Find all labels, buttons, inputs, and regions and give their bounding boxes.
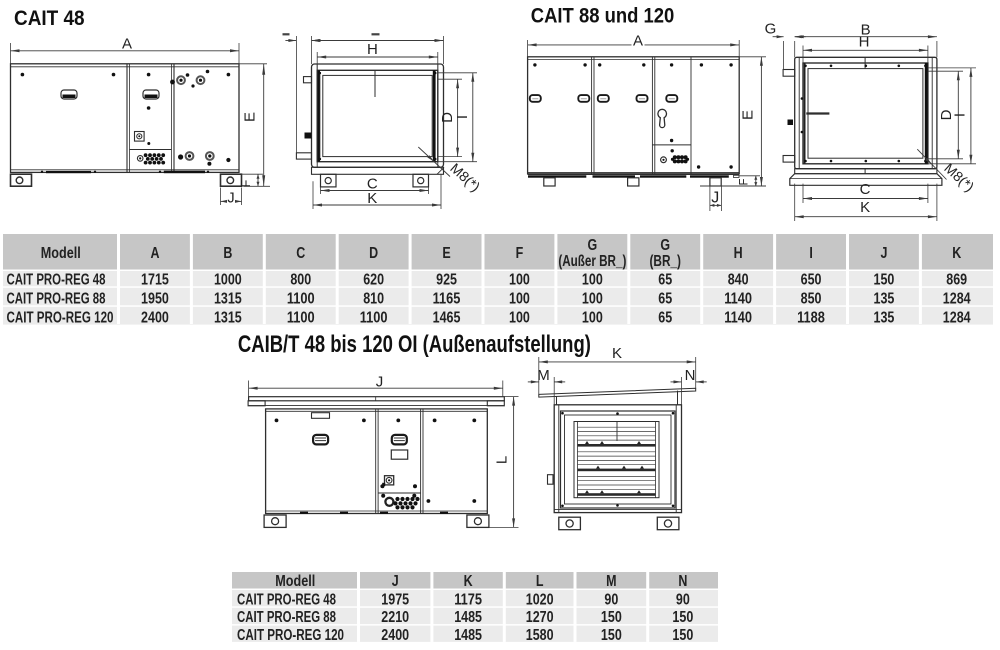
svg-text:L: L [536,573,544,590]
svg-text:1270: 1270 [526,609,554,626]
svg-text:CAIT PRO-REG 48: CAIT PRO-REG 48 [237,591,336,608]
svg-text:840: 840 [728,272,749,289]
svg-text:2210: 2210 [381,609,409,626]
svg-text:1188: 1188 [797,310,825,327]
svg-text:F: F [516,245,524,262]
svg-text:M8(*): M8(*) [941,160,977,195]
svg-text:CAIT PRO-REG 88: CAIT PRO-REG 88 [237,609,336,626]
svg-text:869: 869 [946,272,967,289]
svg-text:M: M [537,367,550,384]
svg-text:1100: 1100 [287,291,315,308]
svg-text:850: 850 [801,291,822,308]
svg-text:CAIT PRO-REG 48: CAIT PRO-REG 48 [7,272,106,289]
svg-text:100: 100 [582,272,603,289]
svg-text:65: 65 [658,291,672,308]
svg-text:1465: 1465 [433,310,461,327]
svg-text:100: 100 [582,310,603,327]
svg-text:2400: 2400 [141,310,169,327]
svg-text:150: 150 [601,627,622,644]
svg-text:H: H [859,33,870,50]
svg-text:CAIT PRO-REG 120: CAIT PRO-REG 120 [7,310,114,327]
svg-text:150: 150 [672,609,693,626]
svg-text:Modell: Modell [41,245,81,262]
svg-text:1284: 1284 [943,310,971,327]
svg-text:A: A [150,245,159,262]
svg-text:65: 65 [658,272,672,289]
svg-text:1100: 1100 [287,310,315,327]
svg-text:90: 90 [676,591,690,608]
svg-text:1020: 1020 [526,591,554,608]
svg-text:150: 150 [601,609,622,626]
svg-text:L: L [494,456,511,464]
svg-text:N: N [678,573,687,590]
svg-text:J: J [880,245,887,262]
svg-text:1284: 1284 [943,291,971,308]
svg-text:1950: 1950 [141,291,169,308]
svg-text:100: 100 [582,291,603,308]
svg-text:150: 150 [874,272,895,289]
svg-text:C: C [860,181,871,198]
svg-text:D: D [369,245,378,262]
svg-text:(Außer BR_): (Außer BR_) [558,253,626,270]
svg-text:1315: 1315 [214,310,242,327]
svg-text:E: E [740,110,757,120]
svg-text:N: N [685,367,696,384]
svg-text:G: G [588,237,598,254]
svg-text:G: G [765,21,777,38]
svg-text:1580: 1580 [526,627,554,644]
svg-text:810: 810 [363,291,384,308]
svg-text:K: K [464,573,473,590]
svg-text:C: C [296,245,305,262]
svg-text:K: K [367,190,377,207]
svg-text:H: H [367,41,378,58]
svg-text:M8(*): M8(*) [447,160,483,195]
svg-text:1315: 1315 [214,291,242,308]
svg-text:J: J [711,190,719,207]
svg-text:Modell: Modell [275,573,315,590]
svg-text:100: 100 [509,272,530,289]
svg-text:1975: 1975 [381,591,409,608]
svg-text:(BR_): (BR_) [650,253,682,270]
svg-text:CAIT 88 und 120: CAIT 88 und 120 [531,4,675,27]
svg-text:J: J [392,573,399,590]
svg-text:150: 150 [672,627,693,644]
svg-text:800: 800 [290,272,311,289]
svg-text:1165: 1165 [433,291,461,308]
svg-text:135: 135 [874,310,895,327]
svg-text:1485: 1485 [454,627,482,644]
svg-text:B: B [223,245,232,262]
svg-text:1715: 1715 [141,272,169,289]
svg-text:A: A [122,35,132,52]
svg-text:1140: 1140 [724,310,752,327]
svg-text:F: F [239,179,253,187]
svg-text:CAIT 48: CAIT 48 [14,7,85,30]
svg-text:100: 100 [509,310,530,327]
svg-text:2400: 2400 [381,627,409,644]
svg-text:925: 925 [436,272,457,289]
svg-text:E: E [442,245,451,262]
svg-text:M: M [606,573,616,590]
svg-text:CAIT PRO-REG 120: CAIT PRO-REG 120 [237,627,344,644]
svg-text:F: F [739,178,751,185]
svg-text:J: J [227,191,234,207]
svg-text:135: 135 [874,291,895,308]
svg-text:100: 100 [509,291,530,308]
svg-text:E: E [242,112,259,122]
svg-text:1000: 1000 [214,272,242,289]
svg-text:650: 650 [801,272,822,289]
svg-text:A: A [633,33,643,50]
svg-text:G: G [660,237,670,254]
svg-text:90: 90 [604,591,618,608]
svg-text:J: J [376,374,384,391]
svg-text:CAIB/T 48 bis 120 OI (Außenauf: CAIB/T 48 bis 120 OI (Außenaufstellung) [238,331,591,358]
svg-text:CAIT PRO-REG 88: CAIT PRO-REG 88 [7,291,106,308]
svg-text:H: H [734,245,743,262]
svg-text:I: I [809,245,812,262]
svg-text:I: I [454,115,471,119]
svg-text:1175: 1175 [454,591,482,608]
svg-text:620: 620 [363,272,384,289]
svg-text:I: I [952,113,969,117]
svg-text:K: K [952,245,961,262]
svg-text:1140: 1140 [724,291,752,308]
svg-text:65: 65 [658,310,672,327]
svg-text:K: K [860,199,870,216]
svg-text:K: K [612,345,622,362]
svg-text:1100: 1100 [360,310,388,327]
svg-text:1485: 1485 [454,609,482,626]
